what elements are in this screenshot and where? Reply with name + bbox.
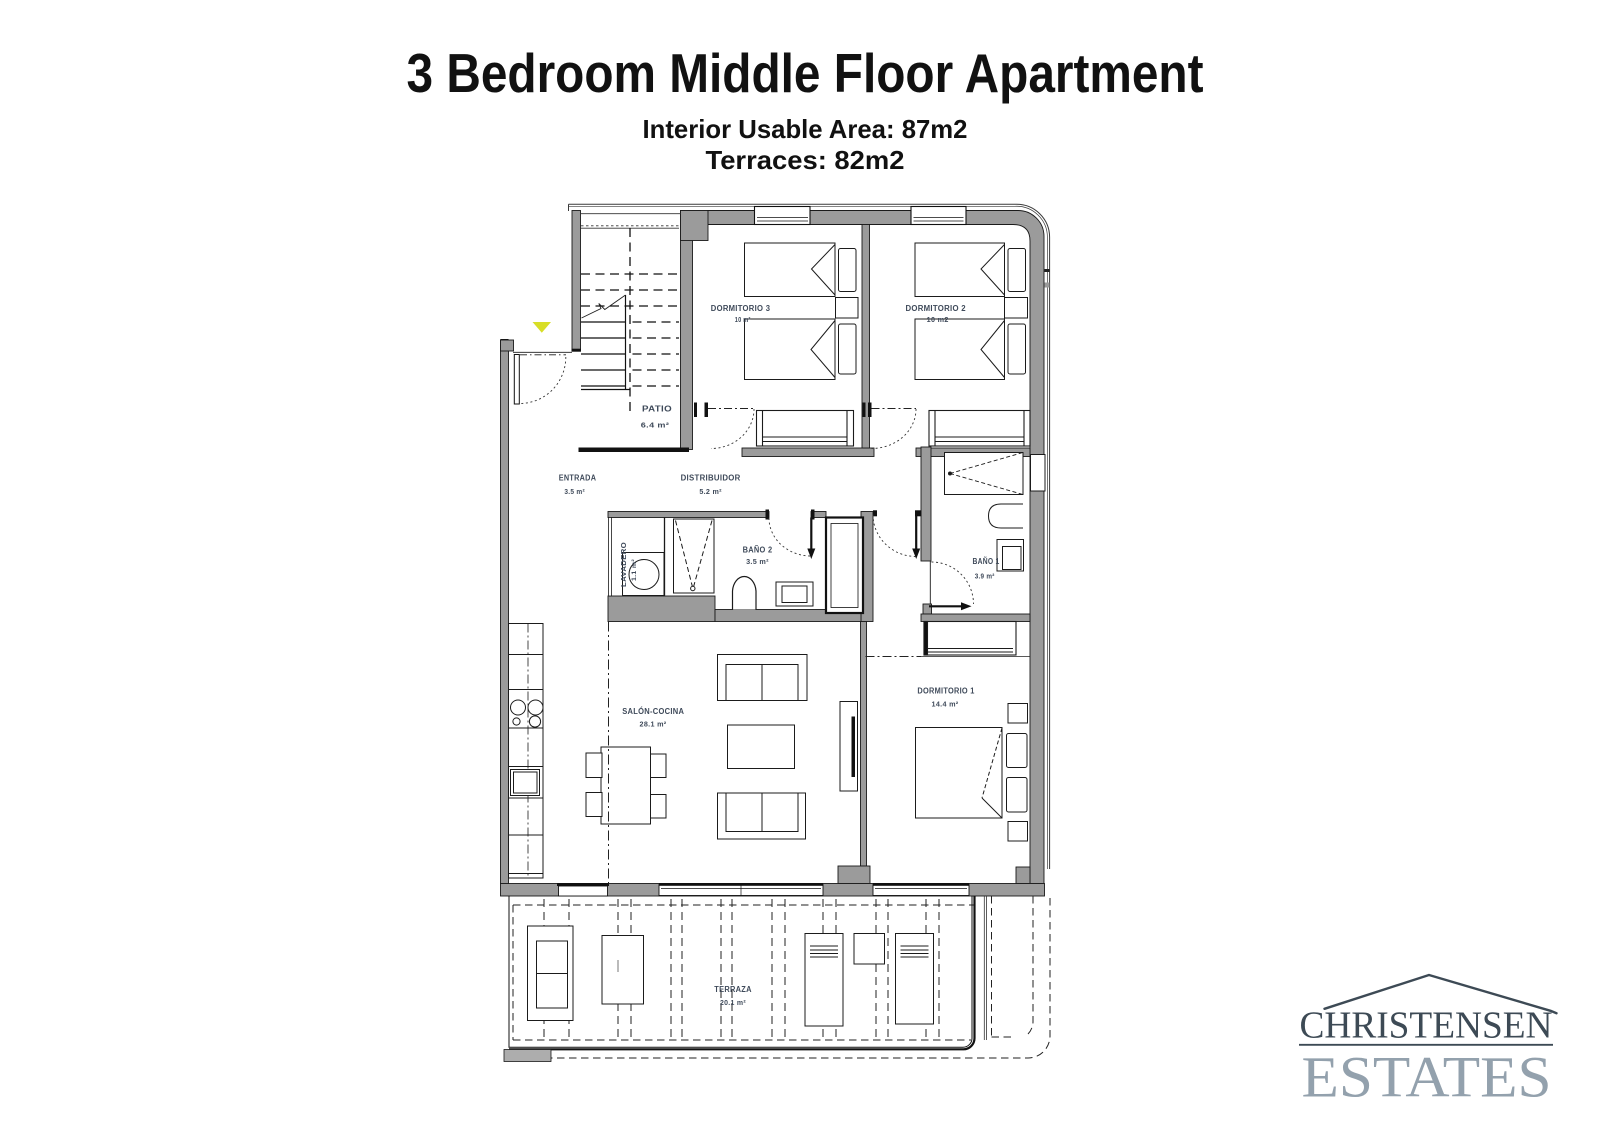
svg-text:PATIO: PATIO [642,405,672,414]
svg-text:3.9 m²: 3.9 m² [975,574,995,581]
svg-text:3 Bedroom Middle Floor Apartme: 3 Bedroom Middle Floor Apartment [407,42,1204,104]
svg-text:DISTRIBUIDOR: DISTRIBUIDOR [681,474,741,483]
svg-text:5.2 m²: 5.2 m² [699,489,722,496]
svg-text:ESTATES: ESTATES [1302,1045,1552,1110]
svg-text:ENTRADA: ENTRADA [559,474,597,483]
svg-text:LAVADERO: LAVADERO [621,542,628,587]
svg-text:1.1 m²: 1.1 m² [631,558,638,581]
svg-text:Terraces: 82m2: Terraces: 82m2 [706,145,905,175]
svg-text:SALÓN-COCINA: SALÓN-COCINA [622,707,684,716]
svg-text:CHRISTENSEN: CHRISTENSEN [1300,1005,1553,1047]
svg-text:10 m²: 10 m² [735,317,751,324]
svg-text:3.5 m²: 3.5 m² [746,559,769,566]
svg-text:28.1 m²: 28.1 m² [640,721,667,728]
svg-text:6.4 m²: 6.4 m² [641,423,670,430]
svg-text:14.4 m²: 14.4 m² [932,702,959,709]
svg-text:DORMITORIO 1: DORMITORIO 1 [917,687,975,696]
svg-text:DORMITORIO 2: DORMITORIO 2 [905,304,966,313]
svg-text:Interior Usable Area: 87m2: Interior Usable Area: 87m2 [643,114,968,144]
svg-text:TERRAZA: TERRAZA [714,985,752,994]
svg-text:3.5 m²: 3.5 m² [564,489,585,496]
svg-text:BAÑO 2: BAÑO 2 [743,546,773,555]
svg-text:BAÑO 1: BAÑO 1 [973,557,1000,566]
svg-text:20.1 m²: 20.1 m² [720,1000,746,1007]
svg-text:DORMITORIO 3: DORMITORIO 3 [711,304,771,313]
svg-text:10 m2: 10 m2 [927,317,949,324]
